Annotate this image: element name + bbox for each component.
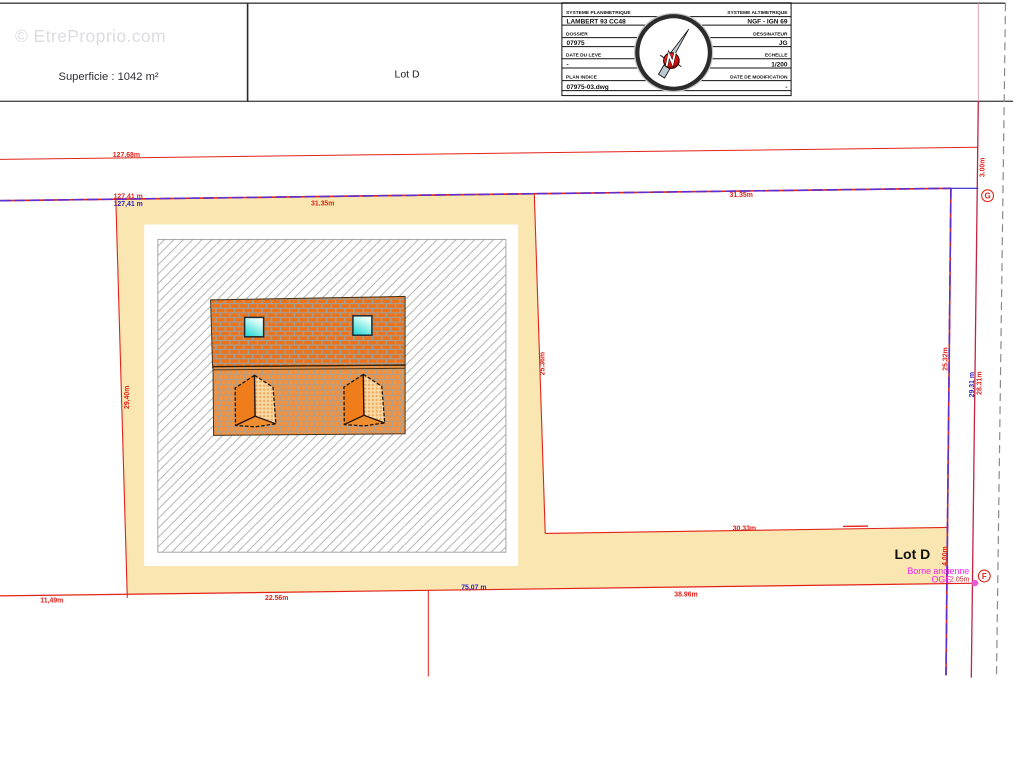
svg-text:JG: JG bbox=[779, 40, 788, 47]
svg-text:29.31 m: 29.31 m bbox=[969, 372, 976, 397]
svg-text:07975-03.dwg: 07975-03.dwg bbox=[567, 84, 609, 91]
svg-text:DATE DU LEVE: DATE DU LEVE bbox=[566, 53, 602, 59]
svg-text:Lot D: Lot D bbox=[395, 69, 421, 81]
svg-text:29,40m: 29,40m bbox=[124, 386, 131, 409]
svg-text:25.32m: 25.32m bbox=[942, 347, 949, 370]
svg-text:31.35m: 31.35m bbox=[730, 192, 753, 199]
svg-text:31.35m: 31.35m bbox=[311, 201, 334, 208]
svg-text:SYSTEME PLANIMETRIQUE: SYSTEME PLANIMETRIQUE bbox=[566, 10, 631, 16]
svg-text:DESSINATEUR: DESSINATEUR bbox=[753, 32, 788, 38]
svg-text:3.00m: 3.00m bbox=[979, 158, 986, 178]
svg-text:OGE: OGE bbox=[932, 575, 952, 585]
svg-text:F: F bbox=[982, 572, 987, 581]
svg-text:2.05m: 2.05m bbox=[950, 576, 970, 583]
svg-text:75,07 m: 75,07 m bbox=[461, 584, 486, 591]
svg-text:LAMBERT 93 CC48: LAMBERT 93 CC48 bbox=[567, 19, 627, 26]
svg-text:Superficie : 1042 m²: Superficie : 1042 m² bbox=[59, 71, 159, 83]
svg-text:38.96m: 38.96m bbox=[674, 592, 697, 599]
svg-text:-: - bbox=[785, 84, 787, 91]
svg-text:Lot D: Lot D bbox=[895, 546, 931, 562]
svg-text:-: - bbox=[567, 61, 569, 68]
svg-text:127,41 m: 127,41 m bbox=[114, 201, 143, 208]
svg-text:NGF - IGN 69: NGF - IGN 69 bbox=[747, 19, 787, 26]
svg-text:28.31m: 28.31m bbox=[977, 372, 984, 395]
svg-text:127,41 m: 127,41 m bbox=[114, 194, 143, 201]
svg-text:07975: 07975 bbox=[567, 40, 585, 47]
svg-text:11,49m: 11,49m bbox=[40, 598, 63, 605]
svg-text:25.36m: 25.36m bbox=[540, 352, 547, 375]
svg-text:DATE DE MODIFICATION: DATE DE MODIFICATION bbox=[730, 75, 788, 81]
svg-text:PLAN INDICE: PLAN INDICE bbox=[566, 75, 598, 81]
svg-text:127,68m: 127,68m bbox=[113, 152, 140, 159]
svg-text:30.33m: 30.33m bbox=[733, 525, 756, 532]
svg-text:4.00m: 4.00m bbox=[942, 546, 949, 566]
svg-text:G: G bbox=[984, 192, 990, 201]
svg-text:DOSSIER: DOSSIER bbox=[566, 32, 588, 38]
svg-text:ECHELLE: ECHELLE bbox=[765, 53, 788, 59]
svg-text:22.56m: 22.56m bbox=[265, 595, 288, 602]
svg-text:SYSTEME ALTIMETRIQUE: SYSTEME ALTIMETRIQUE bbox=[727, 10, 788, 16]
svg-text:1/200: 1/200 bbox=[771, 61, 788, 68]
svg-text:© EtreProprio.com: © EtreProprio.com bbox=[15, 26, 166, 46]
